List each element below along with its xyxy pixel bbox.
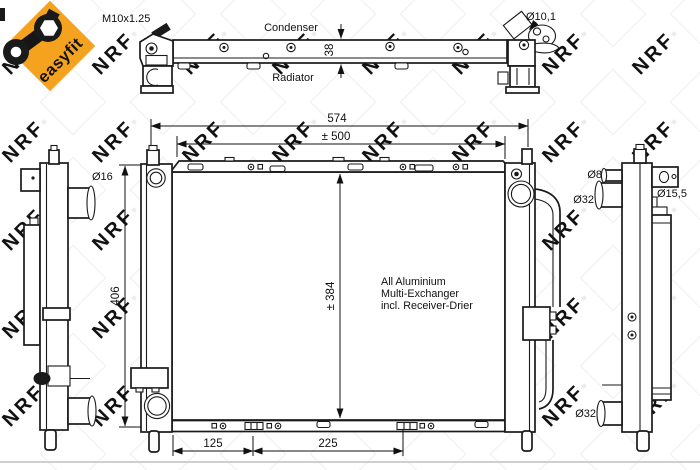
depth-dimension-label: 38 <box>324 44 336 57</box>
right-view-small-pipe <box>601 169 622 183</box>
svg-text:NRF: NRF <box>538 204 589 255</box>
top-view: 38 M10x1.25 Condenser Radiator Ø10,1 <box>102 11 559 93</box>
drawing-canvas: NRFNRFNRFNRFNRFNRFNRFNRFNRFNRFNRFNRFNRFN… <box>0 0 700 470</box>
spec-note-line-1: All Aluminium <box>381 276 446 288</box>
svg-text:NRF: NRF <box>88 116 139 167</box>
bottom-offset-left-dimension-label: 125 <box>203 438 222 450</box>
right-view-mount-bracket <box>652 167 678 187</box>
core-height-dimension-label: ± 384 <box>325 281 337 310</box>
core-width-dimension-label: ± 500 <box>322 131 351 143</box>
technical-drawing-page: NRFNRFNRFNRFNRFNRFNRFNRFNRFNRFNRFNRFNRFN… <box>0 0 700 470</box>
bottom-pipe-diameter-label: Ø32 <box>575 408 596 420</box>
spec-note-line-3: incl. Receiver-Drier <box>381 300 473 312</box>
left-pipe-diameter-label: Ø16 <box>92 171 113 183</box>
svg-text:NRF: NRF <box>538 116 589 167</box>
right-view-top-pipe <box>595 181 622 209</box>
left-view-bottom-pipe <box>68 396 96 426</box>
top-view-right-endcap <box>498 11 559 93</box>
front-view: All Aluminium Multi-Exchanger incl. Rece… <box>131 146 560 453</box>
small-pipe-diameter-label: Ø8 <box>587 169 602 181</box>
left-view-top-pipe <box>68 186 95 220</box>
front-right-tank <box>505 149 535 451</box>
right-view-bottom-pipe <box>597 401 622 427</box>
bracket-hole-diameter-label: Ø15,5 <box>657 188 687 200</box>
front-left-tank <box>131 146 172 453</box>
condenser-label: Condenser <box>264 22 318 34</box>
overall-width-dimension-label: 574 <box>327 113 347 125</box>
port-diameter-label: Ø10,1 <box>526 11 556 23</box>
overall-height-dimension-label: 406 <box>110 286 122 305</box>
radiator-label: Radiator <box>272 72 314 84</box>
top-view-left-endcap <box>140 23 173 93</box>
spec-note-line-2: Multi-Exchanger <box>381 288 459 300</box>
svg-text:NRF: NRF <box>0 116 49 167</box>
thread-size-label: M10x1.25 <box>102 13 150 25</box>
watermark-tile: NRF <box>628 0 700 79</box>
svg-text:NRF: NRF <box>448 116 499 167</box>
svg-text:NRF: NRF <box>628 28 679 79</box>
svg-text:NRF: NRF <box>88 28 139 79</box>
svg-text:NRF: NRF <box>88 204 139 255</box>
svg-text:NRF: NRF <box>268 116 319 167</box>
bottom-offset-right-dimension-label: 225 <box>318 438 337 450</box>
svg-text:NRF: NRF <box>178 116 229 167</box>
top-pipe-diameter-label: Ø32 <box>573 194 594 206</box>
